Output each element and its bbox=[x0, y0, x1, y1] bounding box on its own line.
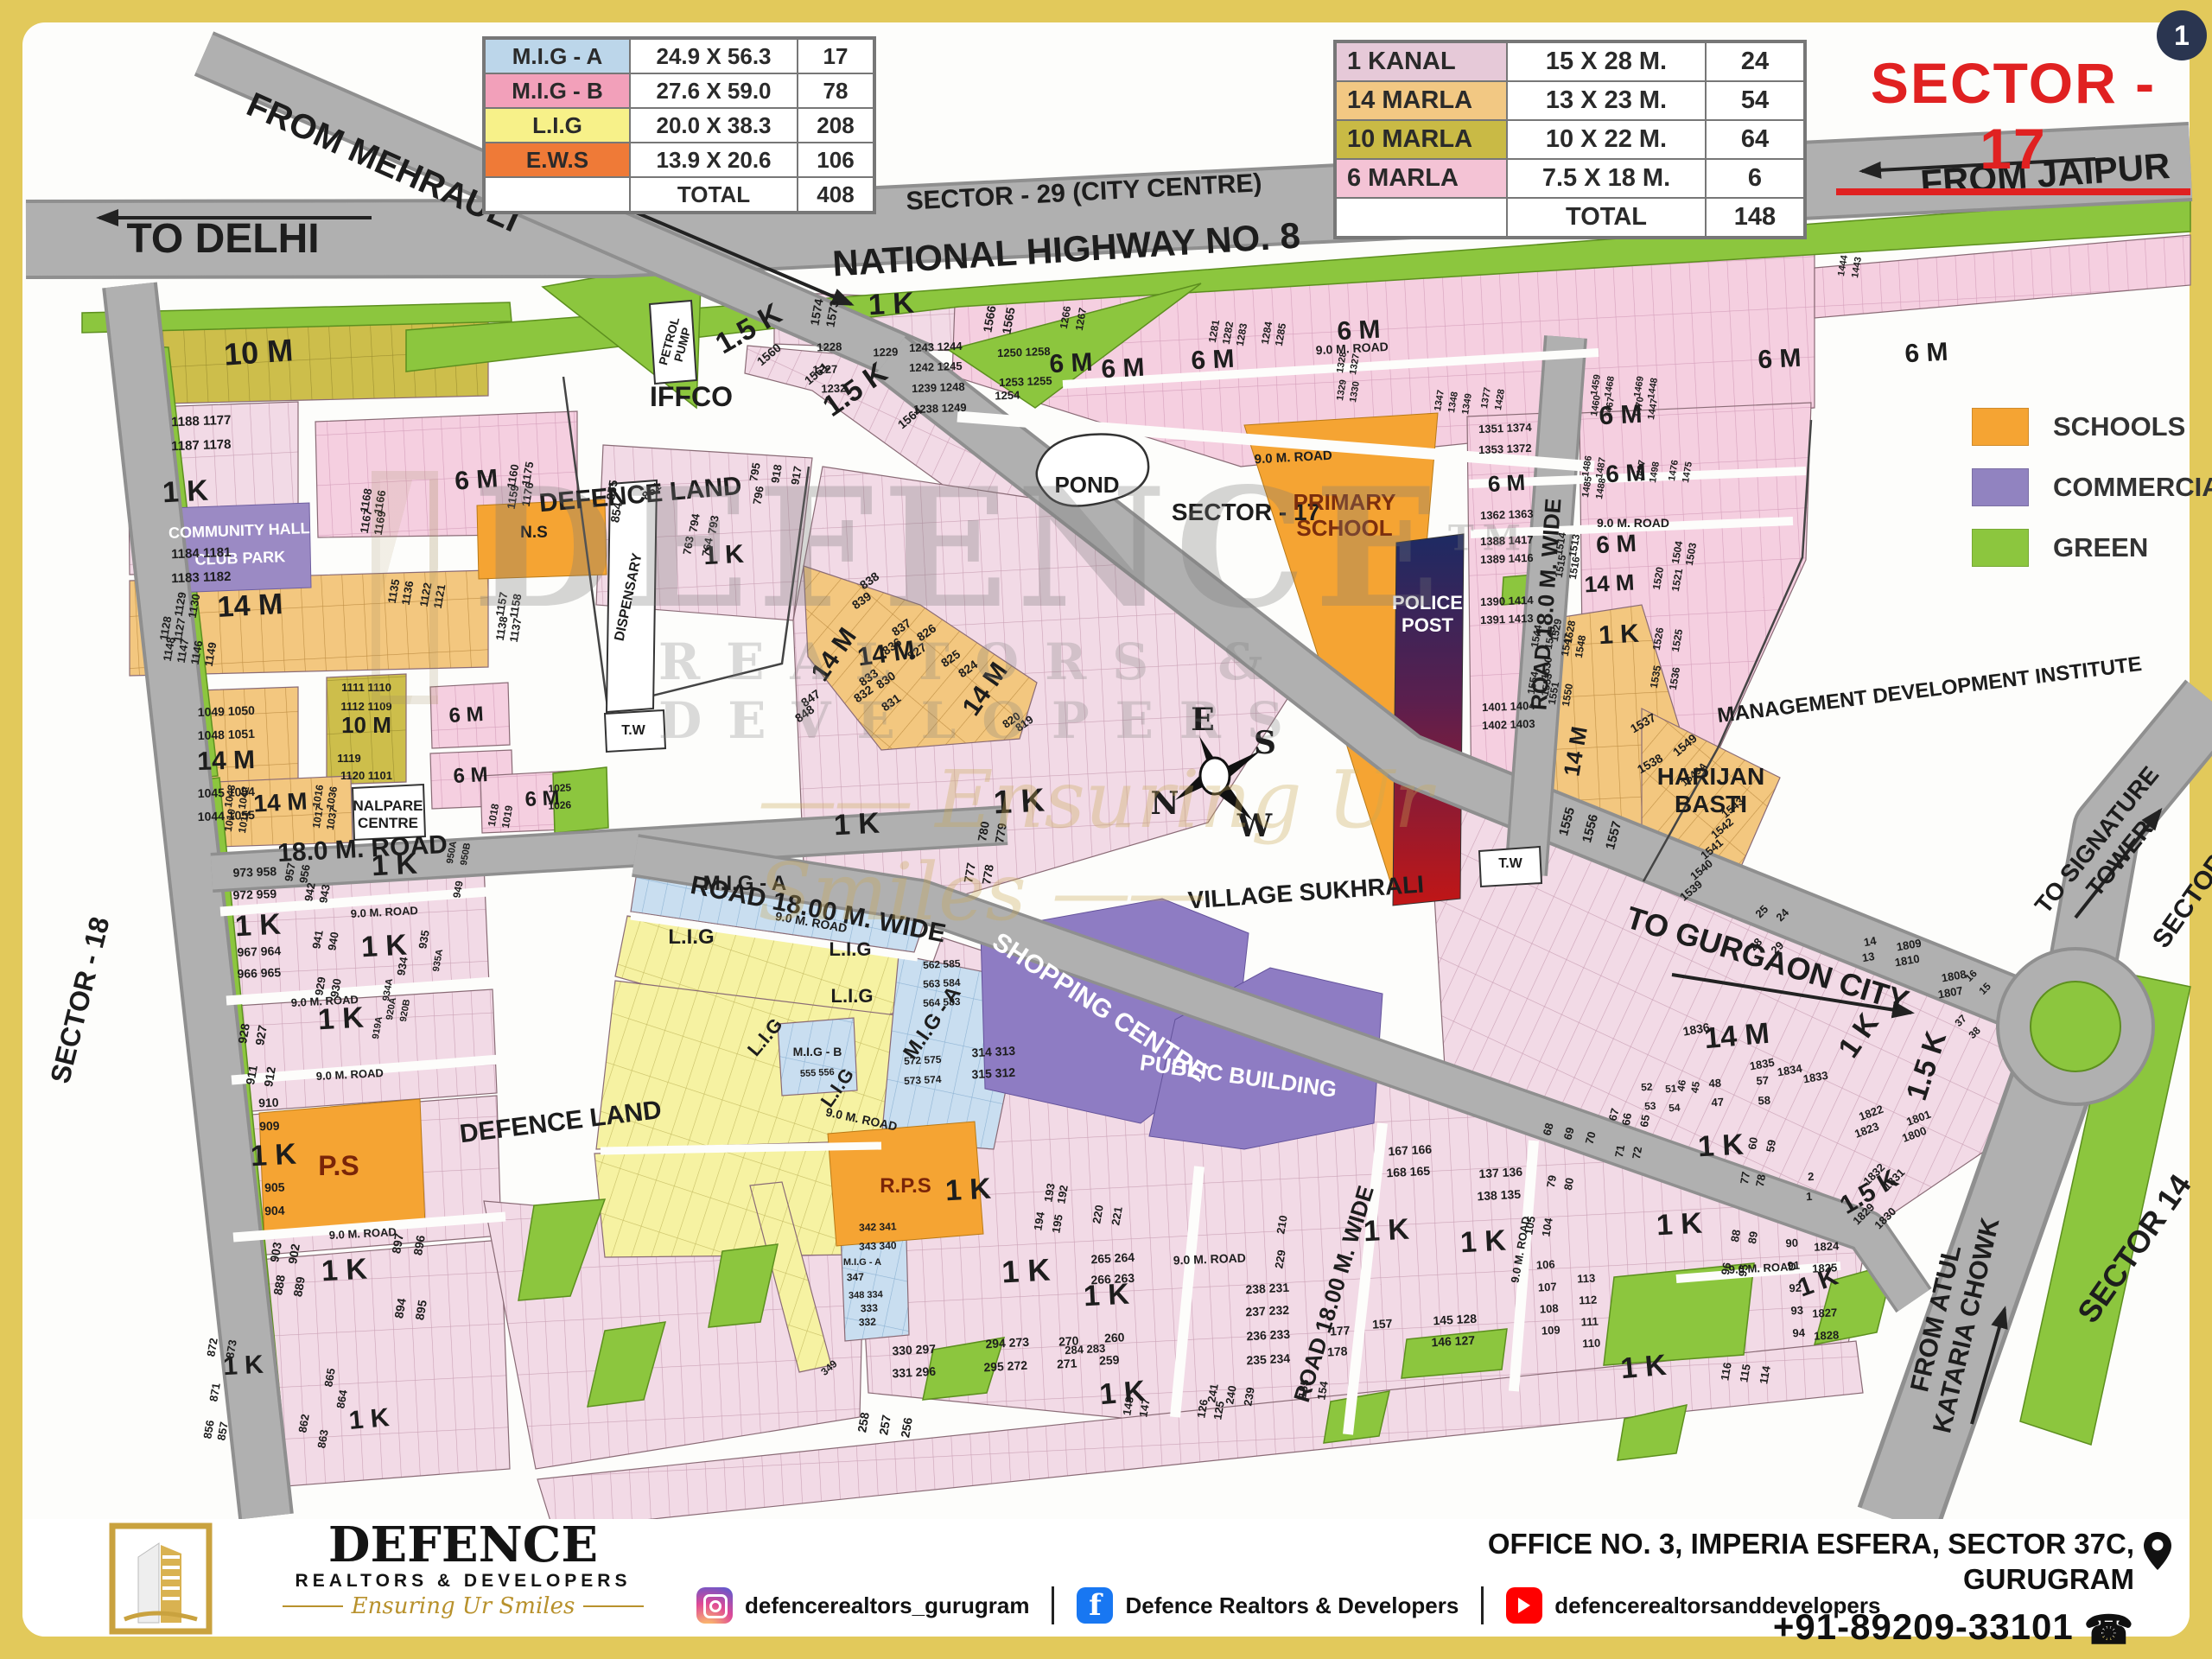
map-label: 284 283 bbox=[1065, 1342, 1106, 1357]
map-label: TO DELHI bbox=[126, 216, 319, 262]
map-label: 1242 1245 bbox=[909, 359, 963, 374]
map-label: 1 K bbox=[1656, 1207, 1703, 1243]
map-label: 1824 bbox=[1814, 1239, 1840, 1254]
phone-icon: ☎ bbox=[2084, 1607, 2134, 1652]
map-label: 72 bbox=[1630, 1146, 1644, 1160]
map-label: T.W bbox=[621, 723, 645, 738]
map-label: 168 165 bbox=[1386, 1164, 1431, 1180]
map-label: 1049 1050 bbox=[197, 703, 255, 719]
plot-type-cell: 1 KANAL bbox=[1336, 42, 1507, 81]
map-label: 573 574 bbox=[904, 1073, 942, 1087]
map-label: 95 bbox=[1736, 1263, 1751, 1278]
table-row: M.I.G - B27.6 X 59.078 bbox=[485, 73, 874, 108]
plot-table-mig[interactable]: M.I.G - A24.9 X 56.317 M.I.G - B27.6 X 5… bbox=[484, 38, 874, 213]
map-label: 265 264 bbox=[1090, 1250, 1135, 1267]
map-label: 14 M bbox=[197, 746, 256, 776]
map-label: 94 bbox=[1792, 1326, 1806, 1340]
map-label: MANAGEMENT DEVELOPMENT INSTITUTE bbox=[1716, 652, 2143, 728]
map-label: 257 bbox=[876, 1414, 893, 1436]
map-label: 1 K bbox=[1459, 1224, 1507, 1260]
page: TO DELHIFROM MEHRAULISECTOR - 29 (CITY C… bbox=[0, 0, 2212, 1659]
map-label: 1 K bbox=[250, 1138, 297, 1173]
schools-swatch bbox=[1972, 408, 2029, 446]
map-label: 6 M bbox=[1904, 338, 1949, 369]
map-label: 1362 1363 bbox=[1480, 507, 1534, 522]
map-label: 6 M bbox=[1101, 353, 1146, 385]
map-label: 295 272 bbox=[983, 1358, 1028, 1375]
map-label: 54 bbox=[1669, 1102, 1681, 1115]
map-label: 6 M bbox=[1487, 469, 1526, 497]
sector-map[interactable]: TO DELHIFROM MEHRAULISECTOR - 29 (CITY C… bbox=[0, 0, 2212, 1659]
map-label: 89 bbox=[1745, 1230, 1760, 1245]
map-label: 10 M bbox=[223, 332, 295, 372]
map-label: N bbox=[1151, 785, 1179, 822]
green-swatch bbox=[1972, 529, 2029, 567]
map-label: 145 128 bbox=[1433, 1312, 1478, 1328]
map-label: 1229 bbox=[873, 346, 898, 359]
map-label: 1 K bbox=[944, 1173, 992, 1208]
table-row: 14 MARLA13 X 23 M.54 bbox=[1336, 81, 1804, 120]
map-label: IFFCO bbox=[650, 381, 733, 412]
map-label: 13 bbox=[1861, 950, 1876, 964]
map-label: 857 bbox=[214, 1421, 231, 1441]
map-label: 562 585 bbox=[923, 957, 961, 971]
map-label: 238 231 bbox=[1245, 1281, 1290, 1297]
brand-sub: REALTORS & DEVELOPERS bbox=[282, 1571, 645, 1592]
map-label: 237 232 bbox=[1245, 1303, 1290, 1319]
map-label: 271 bbox=[1057, 1356, 1077, 1370]
map-label: 330 297 bbox=[892, 1342, 937, 1358]
map-label: 342 341 bbox=[859, 1220, 897, 1234]
map-label: 6 M bbox=[1191, 345, 1236, 376]
map-label: 1250 1258 bbox=[997, 345, 1051, 359]
map-label: P.S bbox=[318, 1150, 359, 1181]
map-label: 347 bbox=[847, 1271, 865, 1284]
map-label: 1243 1244 bbox=[909, 340, 963, 354]
map-label: 256 bbox=[898, 1416, 915, 1439]
map-label: 260 bbox=[1104, 1330, 1125, 1344]
map-label: 1825 bbox=[1812, 1261, 1838, 1274]
map-label: NALPARECENTRE bbox=[353, 798, 423, 831]
instagram-link[interactable]: defencerealtors_gurugram bbox=[696, 1587, 1029, 1624]
map-label: 348 334 bbox=[849, 1289, 884, 1300]
map-label: 1 K bbox=[1001, 1252, 1051, 1290]
map-label: 107 bbox=[1538, 1280, 1557, 1294]
instagram-icon bbox=[696, 1587, 733, 1624]
map-label: M.I.G - A bbox=[843, 1257, 881, 1268]
legend: SCHOOLS COMMERCIAL GREEN bbox=[1972, 408, 2212, 589]
map-label: 91 bbox=[1787, 1259, 1800, 1273]
map-label: 1119 bbox=[337, 752, 361, 765]
map-label: 65 bbox=[1637, 1114, 1652, 1128]
map-label: L.I.G bbox=[829, 938, 872, 960]
map-label: POLICEPOST bbox=[1392, 592, 1463, 636]
legend-item-green: GREEN bbox=[1972, 529, 2212, 567]
page-title: SECTOR - 17 bbox=[1836, 50, 2190, 195]
map-label: 14 M bbox=[253, 787, 308, 817]
map-label: 93 bbox=[1790, 1304, 1803, 1318]
map-label: 909 bbox=[259, 1119, 280, 1134]
brand-logo bbox=[109, 1522, 230, 1635]
map-label: 872 bbox=[204, 1337, 220, 1357]
map-label: VILLAGE SUKHRALI bbox=[1187, 871, 1425, 914]
facebook-icon: f bbox=[1077, 1587, 1113, 1624]
map-label: 266 263 bbox=[1090, 1271, 1135, 1287]
table-row: E.W.S13.9 X 20.6106 bbox=[485, 143, 874, 177]
map-label: 1025 bbox=[548, 781, 572, 794]
table-total-row: TOTAL148 bbox=[1336, 198, 1804, 237]
map-label: 110 bbox=[1582, 1336, 1601, 1350]
map-label: 53 bbox=[1644, 1100, 1656, 1113]
table-row: 6 MARLA7.5 X 18 M.6 bbox=[1336, 159, 1804, 198]
map-label: 6 M bbox=[1595, 530, 1637, 558]
map-label: 1254 bbox=[995, 388, 1020, 402]
legend-item-commercial: COMMERCIAL bbox=[1972, 468, 2212, 506]
map-label: 235 234 bbox=[1246, 1351, 1291, 1368]
map-label: 146 127 bbox=[1431, 1333, 1476, 1350]
map-label: 258 bbox=[855, 1411, 872, 1433]
map-label: SECTOR - 18 bbox=[44, 914, 116, 1087]
map-label: SECTOR 1 bbox=[2147, 831, 2212, 953]
map-label: 1 K bbox=[1363, 1213, 1410, 1249]
map-label: 332 bbox=[859, 1316, 877, 1329]
map-label: E bbox=[1191, 702, 1214, 738]
map-label: 6 M bbox=[453, 763, 488, 788]
plot-type-cell: M.I.G - B bbox=[485, 73, 630, 108]
table-total-row: TOTAL408 bbox=[485, 177, 874, 212]
map-label: 47 bbox=[1711, 1096, 1724, 1109]
separator bbox=[1481, 1586, 1484, 1624]
map-label: 1253 1255 bbox=[999, 374, 1052, 389]
map-label: 71 bbox=[1612, 1144, 1627, 1159]
map-label: 1 K bbox=[321, 1253, 368, 1288]
map-label: 9.0 M. ROAD bbox=[1173, 1251, 1247, 1268]
map-label: 111 bbox=[1580, 1314, 1599, 1328]
map-label: 2 bbox=[1808, 1170, 1815, 1183]
map-label: 1 K bbox=[1619, 1349, 1668, 1386]
brand-block: DEFENCE REALTORS & DEVELOPERS Ensuring U… bbox=[282, 1521, 645, 1619]
table-row: M.I.G - A24.9 X 56.317 bbox=[485, 39, 874, 73]
map-label: 331 296 bbox=[892, 1364, 937, 1381]
map-label: PRIMARYSCHOOL bbox=[1294, 489, 1396, 541]
map-label: 66 bbox=[1619, 1112, 1634, 1127]
map-label: 1228 bbox=[817, 340, 842, 354]
map-label: 1112 1109 bbox=[340, 700, 391, 713]
map-label: 92 bbox=[1789, 1281, 1802, 1295]
map-label: 1351 1374 bbox=[1478, 421, 1533, 435]
map-label: 1232 bbox=[821, 382, 846, 396]
plot-type-cell: E.W.S bbox=[485, 143, 630, 177]
map-label: 80 bbox=[1561, 1177, 1576, 1192]
map-label: POND bbox=[1054, 472, 1119, 498]
map-label: 112 bbox=[1579, 1293, 1598, 1306]
map-label: 1827 bbox=[1812, 1306, 1838, 1319]
commercial-swatch bbox=[1972, 468, 2029, 506]
map-label: 1388 1417 bbox=[1480, 533, 1534, 548]
map-label: 1239 1248 bbox=[912, 380, 965, 395]
map-label: 157 bbox=[1372, 1316, 1393, 1331]
map-label: 178 bbox=[1327, 1344, 1348, 1358]
map-label: 1120 1101 bbox=[340, 769, 392, 782]
map-label: 1238 1249 bbox=[913, 401, 967, 416]
map-label: 60 bbox=[1745, 1136, 1760, 1151]
map-label: 1828 bbox=[1814, 1328, 1840, 1342]
map-label: M.I.G - A bbox=[703, 872, 786, 895]
map-label: 1188 1177 bbox=[171, 413, 232, 429]
map-label: 51 bbox=[1665, 1083, 1677, 1096]
map-label: 137 136 bbox=[1478, 1165, 1523, 1181]
map-label: 314 313 bbox=[971, 1044, 1016, 1060]
map-label: 77 bbox=[1738, 1171, 1752, 1185]
map-label: 1 K bbox=[1598, 620, 1640, 650]
separator bbox=[1052, 1586, 1054, 1624]
contact-block: OFFICE NO. 3, IMPERIA ESFERA, SECTOR 37C… bbox=[1488, 1526, 2134, 1653]
map-label: 1 K bbox=[234, 908, 282, 944]
map-label: R.P.S bbox=[880, 1174, 931, 1198]
map-label: 973 958 bbox=[232, 864, 276, 880]
map-label: 14 M bbox=[1584, 569, 1635, 598]
map-label: 343 340 bbox=[859, 1239, 897, 1253]
map-label: 967 964 bbox=[237, 944, 281, 959]
legend-item-schools: SCHOOLS bbox=[1972, 408, 2212, 446]
map-label: 177 bbox=[1330, 1323, 1351, 1338]
map-label: 905 bbox=[264, 1180, 285, 1195]
map-label: 1389 1416 bbox=[1480, 551, 1534, 566]
map-label: 1 K bbox=[317, 1001, 365, 1037]
map-label: 564 583 bbox=[923, 995, 961, 1009]
map-label: 59 bbox=[1764, 1139, 1778, 1154]
map-label: W bbox=[1236, 808, 1273, 844]
plot-type-cell: L.I.G bbox=[485, 108, 630, 143]
map-label: 1390 1414 bbox=[1480, 594, 1535, 608]
map-label: 294 273 bbox=[985, 1335, 1030, 1351]
brand-name: DEFENCE bbox=[282, 1521, 645, 1569]
map-label: 563 584 bbox=[923, 976, 961, 990]
police-post-block[interactable] bbox=[1393, 534, 1464, 906]
map-label: 1 K bbox=[371, 848, 418, 883]
map-label: T.W bbox=[1498, 856, 1522, 871]
map-label: 1187 1178 bbox=[171, 437, 232, 454]
table-row: L.I.G20.0 X 38.3208 bbox=[485, 108, 874, 143]
map-label: 6 M bbox=[448, 702, 484, 728]
map-label: 236 233 bbox=[1246, 1327, 1291, 1344]
map-label: 79 bbox=[1544, 1174, 1559, 1189]
map-label: 6 M bbox=[1049, 348, 1094, 379]
map-label: 1 K bbox=[868, 287, 915, 322]
map-label: 6 M bbox=[1758, 344, 1802, 375]
phone-number[interactable]: +91-89209-33101☎ bbox=[1488, 1606, 2134, 1653]
plot-type-cell: 10 MARLA bbox=[1336, 120, 1507, 159]
footer: DEFENCE REALTORS & DEVELOPERS Ensuring U… bbox=[22, 1519, 2190, 1637]
office-address: OFFICE NO. 3, IMPERIA ESFERA, SECTOR 37C… bbox=[1488, 1526, 2134, 1598]
map-label: 106 bbox=[1536, 1257, 1555, 1271]
map-label: 333 bbox=[861, 1302, 879, 1315]
map-label: S bbox=[1254, 725, 1276, 761]
map-label: 9.0 M. ROAD bbox=[1597, 516, 1669, 530]
plot-table-marla[interactable]: 1 KANAL15 X 28 M.24 14 MARLA13 X 23 M.54… bbox=[1335, 41, 1805, 238]
map-label: 972 959 bbox=[232, 887, 276, 902]
map-label: 871 bbox=[207, 1382, 223, 1402]
map-label: 1353 1372 bbox=[1478, 442, 1532, 456]
plot-type-cell: 14 MARLA bbox=[1336, 81, 1507, 120]
map-label: 1111 1110 bbox=[341, 681, 391, 694]
brand-tagline: Ensuring Ur Smiles bbox=[282, 1593, 645, 1619]
map-label: 315 312 bbox=[971, 1065, 1016, 1082]
table-row: 1 KANAL15 X 28 M.24 bbox=[1336, 42, 1804, 81]
map-label: L.I.G bbox=[831, 985, 874, 1007]
map-label: 1391 1413 bbox=[1480, 612, 1534, 626]
map-label: 572 575 bbox=[904, 1053, 942, 1067]
map-label: 1184 1181 bbox=[171, 545, 232, 562]
map-label: 108 bbox=[1540, 1301, 1559, 1315]
map-label: 555 556 bbox=[800, 1067, 835, 1079]
map-label: 45 bbox=[1688, 1080, 1702, 1094]
map-label: 910 bbox=[258, 1096, 279, 1110]
map-label: 1 K bbox=[1697, 1128, 1745, 1164]
roundabout-green bbox=[2031, 982, 2120, 1071]
map-label: 1026 bbox=[548, 798, 572, 811]
map-label: 1 K bbox=[347, 1403, 391, 1435]
map-label: 6 M bbox=[454, 464, 499, 495]
map-label: 1 K bbox=[833, 807, 880, 842]
plot-type-cell: M.I.G - A bbox=[485, 39, 630, 73]
corner-badge: 1 bbox=[2157, 10, 2207, 60]
plot-type-cell: 6 MARLA bbox=[1336, 159, 1507, 198]
map-label: 904 bbox=[264, 1204, 285, 1218]
location-pin-icon bbox=[2143, 1531, 2172, 1571]
map-label: 109 bbox=[1541, 1323, 1560, 1337]
map-label: 14 M bbox=[217, 588, 283, 624]
map-label: 48 bbox=[1708, 1077, 1721, 1090]
map-label: 88 bbox=[1728, 1229, 1743, 1243]
map-label: 1227 bbox=[812, 363, 837, 377]
map-label: 1401 1404 bbox=[1482, 699, 1536, 714]
map-label: M.I.G - B bbox=[793, 1045, 842, 1058]
table-row: 10 MARLA10 X 22 M.64 bbox=[1336, 120, 1804, 159]
map-label: 1048 1051 bbox=[197, 727, 255, 742]
map-label: 1 K bbox=[162, 474, 209, 510]
map-label: 1 K bbox=[993, 782, 1046, 821]
map-label: 167 166 bbox=[1388, 1142, 1433, 1159]
map-label: 1183 1182 bbox=[171, 569, 232, 586]
facebook-link[interactable]: f Defence Realtors & Developers bbox=[1077, 1587, 1459, 1624]
map-label: 78 bbox=[1753, 1173, 1768, 1188]
map-label: 1 bbox=[1806, 1190, 1813, 1203]
map-label: 96 bbox=[1719, 1262, 1733, 1276]
map-label: 10 M bbox=[341, 712, 391, 738]
map-label: 90 bbox=[1785, 1236, 1798, 1250]
map-label: 1402 1403 bbox=[1482, 717, 1535, 732]
map-label: 6 M bbox=[1337, 315, 1382, 346]
map-label: 113 bbox=[1577, 1271, 1596, 1285]
map-label: 138 135 bbox=[1477, 1187, 1522, 1204]
map-label: 57 bbox=[1756, 1074, 1769, 1088]
map-label: 14 M bbox=[1703, 1017, 1771, 1055]
map-label: L.I.G bbox=[668, 925, 714, 949]
map-label: 966 965 bbox=[237, 965, 281, 981]
map-label: N.S bbox=[520, 524, 548, 542]
map-label: 52 bbox=[1641, 1081, 1653, 1094]
map-label: 58 bbox=[1758, 1094, 1770, 1108]
